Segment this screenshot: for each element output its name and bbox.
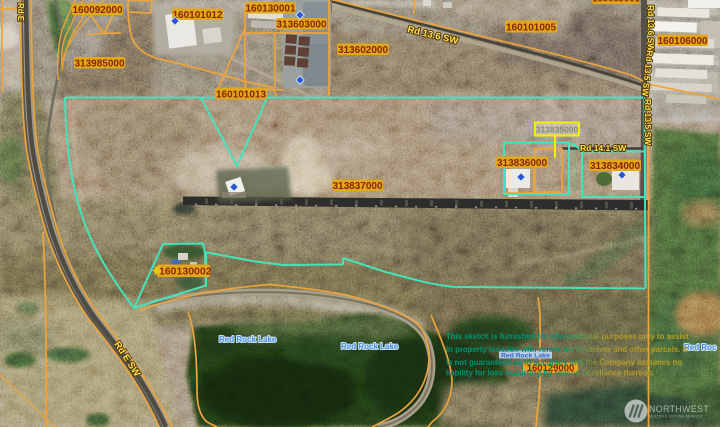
svg-text:160130001: 160130001	[245, 4, 295, 15]
svg-text:in property location with refe: in property location with reference to s…	[446, 345, 688, 354]
svg-text:160130002: 160130002	[159, 266, 212, 278]
svg-text:313834000: 313834000	[590, 161, 640, 172]
svg-text:313835000: 313835000	[536, 125, 579, 135]
svg-text:313836000: 313836000	[497, 158, 547, 169]
svg-text:160089001: 160089001	[592, 0, 640, 5]
svg-text:Red Roc: Red Roc	[684, 343, 717, 352]
svg-text:Rd 14.1 SW: Rd 14.1 SW	[580, 143, 627, 153]
svg-text:This sketch is furnished for i: This sketch is furnished for information…	[446, 332, 689, 341]
svg-text:160106000: 160106000	[657, 36, 707, 47]
svg-text:313603000: 313603000	[276, 20, 326, 31]
svg-text:313837000: 313837000	[332, 181, 382, 192]
svg-text:Rd 13.6 SW: Rd 13.6 SW	[646, 5, 656, 52]
svg-text:Rd E: Rd E	[16, 3, 25, 22]
svg-text:313602000: 313602000	[338, 45, 388, 56]
svg-text:liability for loss occurring b: liability for loss occurring by reason o…	[446, 369, 654, 378]
svg-text:Red Rock Lake: Red Rock Lake	[341, 342, 399, 351]
svg-text:is not guaranteed as to accura: is not guaranteed as to accuracy and the…	[446, 358, 682, 367]
svg-text:160101012: 160101012	[172, 10, 222, 21]
svg-text:NORTHWEST: NORTHWEST	[649, 404, 709, 414]
svg-text:MULTIPLE LISTING SERVICE: MULTIPLE LISTING SERVICE	[649, 415, 703, 419]
svg-text:313985000: 313985000	[74, 59, 124, 70]
svg-text:160092000: 160092000	[72, 5, 122, 16]
svg-text:Rd 13.5 SW: Rd 13.5 SW	[643, 99, 653, 146]
svg-text:160101005: 160101005	[506, 23, 556, 34]
svg-text:160101013: 160101013	[216, 90, 266, 101]
svg-text:Red Rock Lake: Red Rock Lake	[219, 335, 277, 344]
